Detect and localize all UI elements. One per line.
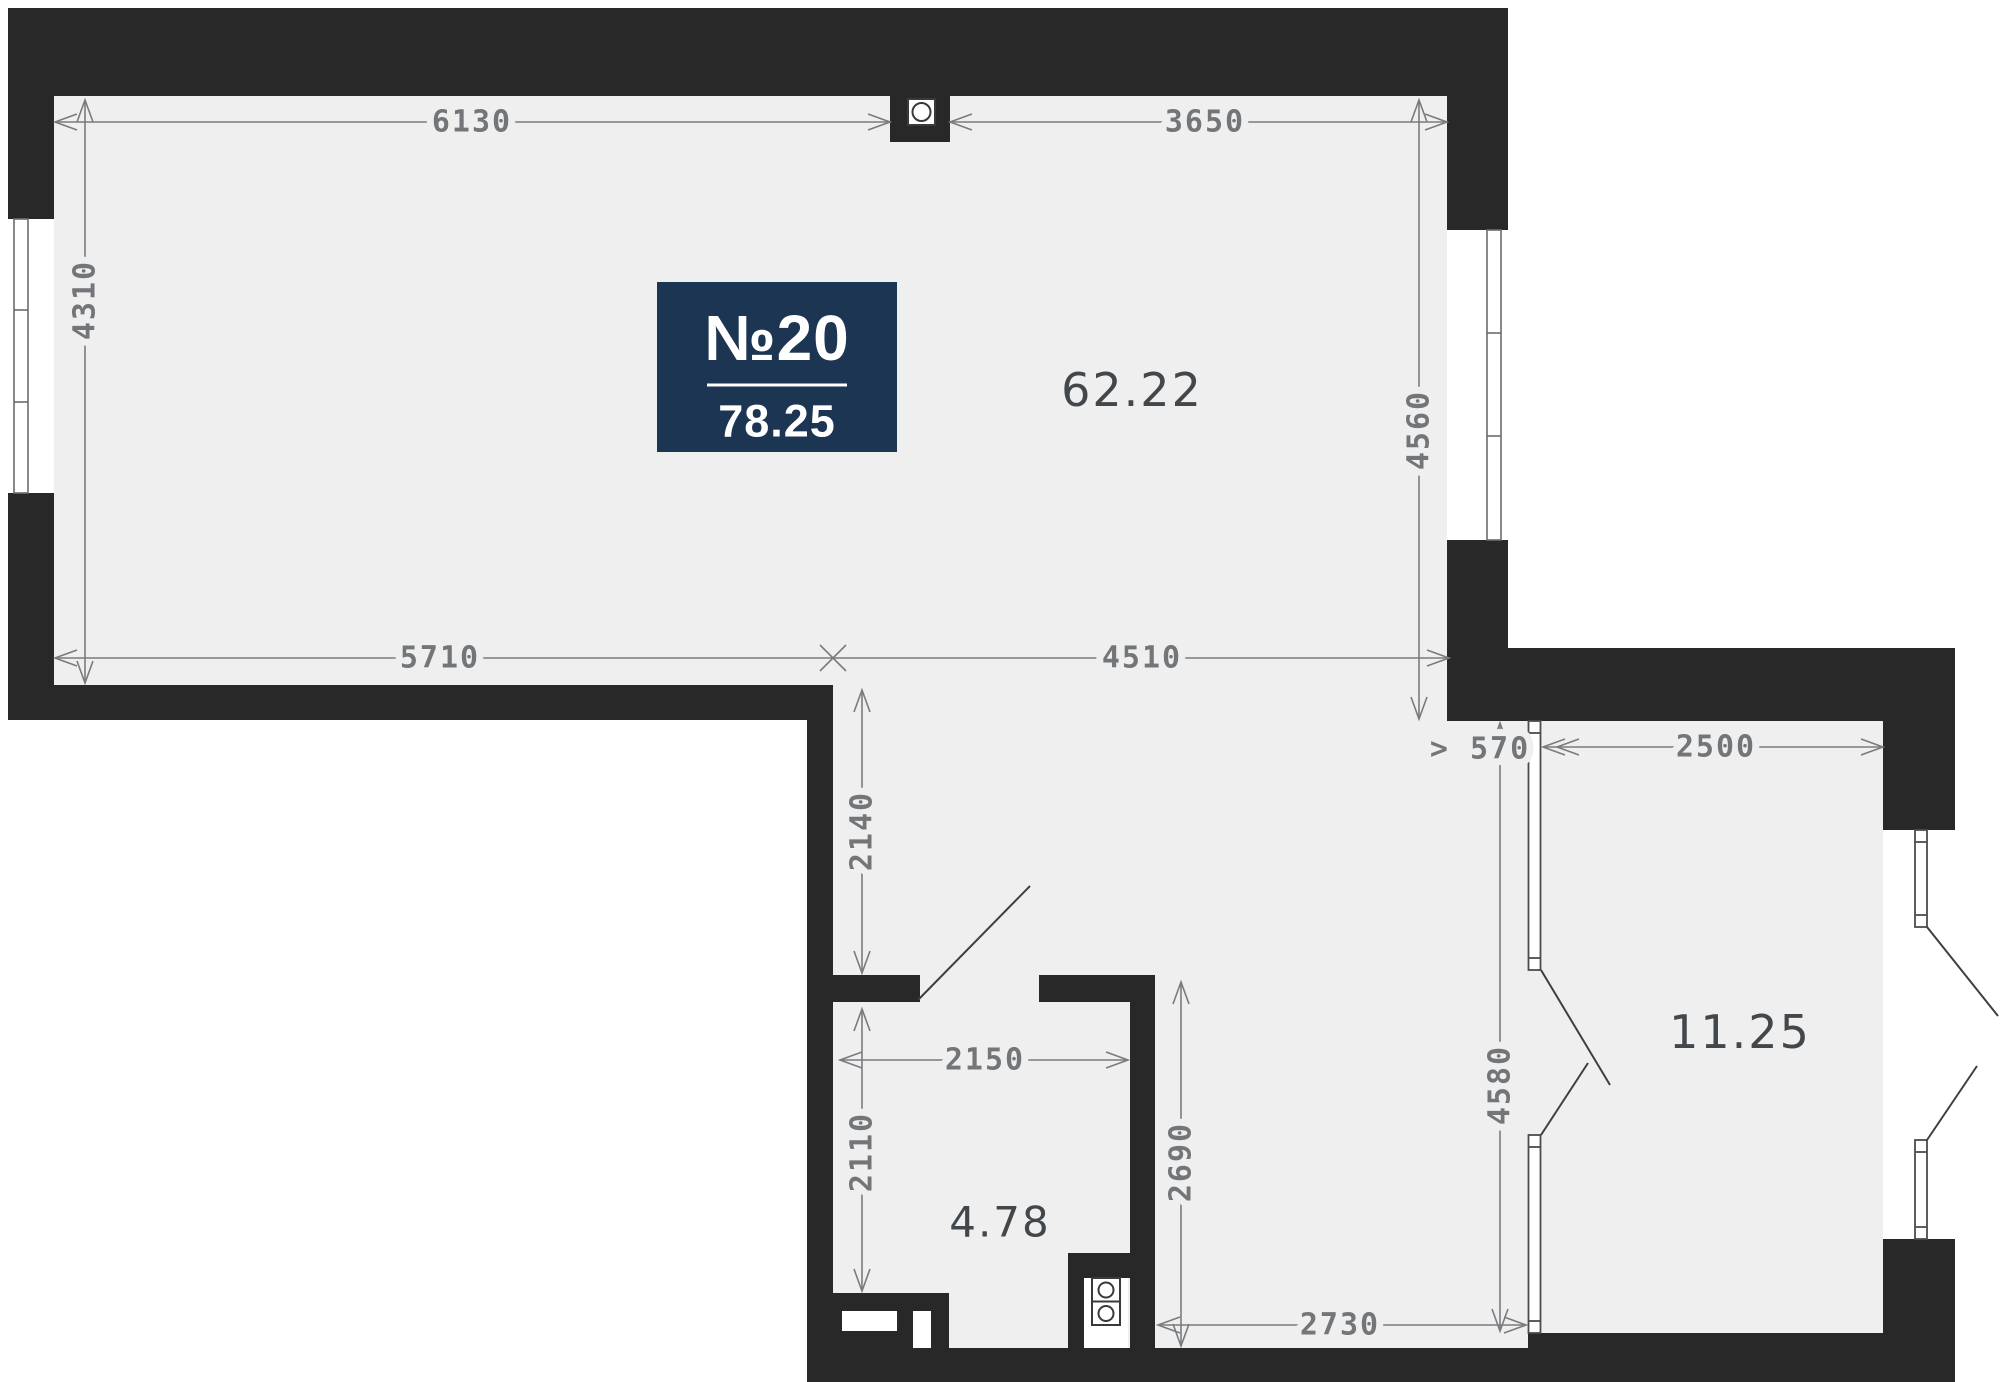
dim-2150: 2150: [945, 1043, 1025, 1078]
wall-bath-lintel-right: [1039, 975, 1130, 1002]
stove-icon: [1084, 1278, 1128, 1348]
floor-bedroom: [1447, 721, 1883, 1333]
dim-4310: 4310: [68, 260, 103, 340]
dim-3650: 3650: [1165, 105, 1245, 140]
dim-4560: 4560: [1402, 390, 1437, 470]
dim-4510: 4510: [1102, 641, 1182, 676]
wall-top: [8, 8, 1508, 96]
wall-bedroom-top: [1447, 648, 1883, 721]
floor-plan: 6130 3650 4310 4560 5710 4510 2140 2110 …: [0, 0, 2000, 1382]
dim-2110: 2110: [845, 1112, 880, 1192]
wall-bedroom-corner-upper: [1883, 648, 1955, 830]
dim-6130: 6130: [432, 105, 512, 140]
dim-570: > 570: [1430, 732, 1530, 767]
dim-5710: 5710: [400, 641, 480, 676]
dim-2730: 2730: [1300, 1308, 1380, 1343]
wall-left-lower: [8, 493, 54, 685]
unit-badge: №20 78.25: [657, 282, 897, 452]
wall-bath-kitchen: [1130, 975, 1155, 1348]
room-label-bedroom: 11.25: [1669, 1005, 1811, 1059]
room-label-main: 62.22: [1061, 363, 1203, 417]
dim-2140: 2140: [845, 791, 880, 871]
room-label-bathroom: 4.78: [949, 1198, 1051, 1247]
wall-right-lower: [1447, 540, 1508, 648]
balcony-door-upper-icon: [1915, 830, 1998, 1016]
unit-total-area: 78.25: [718, 396, 836, 447]
wall-bath-left: [807, 1002, 833, 1293]
window-right-icon: [1447, 230, 1508, 540]
wall-bedroom-corner-lower: [1883, 1239, 1955, 1333]
dim-2500: 2500: [1676, 730, 1756, 765]
wall-right-upper: [1447, 96, 1508, 230]
wall-corridor-left: [807, 720, 833, 1002]
wall-bedroom-bottom: [1528, 1333, 1955, 1382]
wall-niche-stub: [1068, 1253, 1130, 1278]
balcony-door-lower-icon: [1915, 1066, 1977, 1239]
window-left-icon: [8, 219, 54, 493]
dim-4580: 4580: [1483, 1045, 1518, 1125]
dim-2690: 2690: [1164, 1122, 1199, 1202]
wall-mainroom-bottom: [8, 685, 833, 720]
unit-number: №20: [704, 302, 850, 374]
wall-niche-left: [1068, 1278, 1084, 1348]
wall-bath-lintel-left: [807, 975, 920, 1002]
wall-left-upper: [8, 96, 54, 219]
wall-kitchen-bottom: [949, 1348, 1528, 1382]
ventilation-column-icon: [908, 99, 935, 125]
floor-areas: [54, 96, 1883, 1348]
